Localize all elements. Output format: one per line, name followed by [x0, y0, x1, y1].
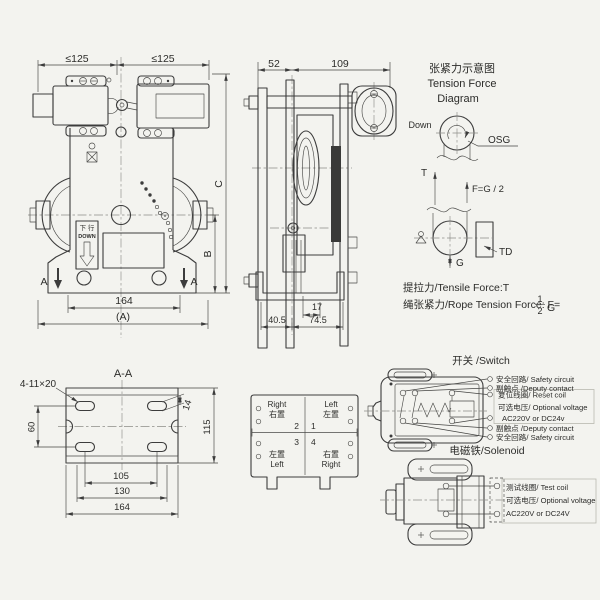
quadrant-tl-cn: 右置: [269, 409, 285, 419]
solenoid-coil-section: [457, 476, 484, 528]
slot-hole: [76, 443, 95, 452]
rope-break-wave: [427, 208, 471, 212]
dim-A-front: (A): [116, 311, 130, 323]
rope-break-wave: [437, 156, 478, 161]
tension-title-en1: Tension Force: [427, 78, 496, 90]
quadrant-tr-cn: 左置: [323, 409, 339, 419]
base-channel: [256, 272, 344, 300]
dim-74-5: 74.5: [309, 315, 327, 325]
dim-164-section: 164: [114, 502, 130, 513]
quadrant-tr-en: Left: [324, 400, 338, 409]
dim-109: 109: [331, 58, 349, 70]
linkage-arm: [108, 98, 118, 103]
base-hole: [152, 271, 166, 285]
quadrant-br-cn: 右置: [323, 449, 339, 459]
base-plate: [48, 250, 196, 293]
fraction-numerator: 1: [537, 294, 542, 304]
section-aa-title: A-A: [114, 368, 133, 380]
solenoid-body: [404, 478, 457, 524]
solenoid-title: 电磁铁/Solenoid: [449, 444, 524, 457]
front-view: ≤125 ≤125: [28, 53, 230, 338]
switch-label-voltage-value: AC220V or DC24v: [502, 414, 565, 423]
switch-label-deputy-bottom: 副触点 /Deputy contact: [496, 423, 575, 433]
solenoid-plunger: [386, 490, 396, 514]
switch-label-optional-voltage: 可选电压/ Optional voltage: [498, 402, 587, 412]
drawing-canvas: ≤125 ≤125: [0, 0, 600, 600]
section-arrow-icon: [54, 280, 62, 289]
down-arrow-icon: [80, 242, 94, 266]
rope-tension-note-G: G: [547, 302, 555, 314]
td-label: TD: [499, 247, 512, 258]
solenoid-label-voltage-value: AC220V or DC24V: [506, 509, 571, 518]
dim-105: 105: [113, 471, 129, 482]
right-plate: [340, 84, 348, 346]
fraction-denominator: 2: [537, 306, 542, 316]
tensile-force-note: 提拉力/Tensile Force:T: [403, 281, 510, 294]
switch-contacts: [400, 390, 418, 424]
force-G-label: G: [456, 258, 464, 269]
terminal-plate-outline: [251, 395, 358, 489]
solenoid-guide: [396, 484, 404, 520]
left-plate: [258, 88, 267, 348]
quadrant-num-2: 2: [294, 421, 299, 431]
section-arrow-icon: [180, 280, 188, 289]
tension-title-cn: 张紧力示意图: [429, 61, 495, 75]
dim-52: 52: [268, 58, 280, 70]
terminal-orientation-diagram: 2 1 3 4 Right 右置 Left 左置 左置 Left 右置 Righ…: [251, 395, 358, 489]
force-F-label: F=G / 2: [472, 184, 504, 195]
solenoid-flange-top: [408, 459, 472, 480]
section-aa-view: A-A 4-11×20 60 14 115 105 130 16: [20, 368, 218, 518]
dim-C: C: [213, 180, 225, 188]
center-plate: [286, 80, 294, 348]
dim-164-front: 164: [115, 295, 133, 307]
solenoid-diagram: 电磁铁/Solenoid 测试线圈/ Test coil 可选电压/ Optio…: [380, 444, 596, 545]
linkage-pivot: [117, 100, 128, 111]
solenoid-plunger: [33, 94, 53, 117]
dim-60: 60: [27, 422, 38, 433]
solenoid-flange-bottom: [408, 524, 472, 545]
switch-box-plate: [156, 94, 204, 118]
tension-weight-box: [476, 222, 493, 257]
quadrant-br-en: Right: [322, 460, 341, 469]
mount-tab: [66, 126, 106, 136]
quadrant-num-1: 1: [311, 421, 316, 431]
section-label-A-left: A: [40, 276, 47, 288]
switch-label-safety-top: 安全回路/ Safety circuit: [496, 374, 575, 384]
lever-plate: [297, 115, 333, 255]
slots-spec-label: 4-11×20: [20, 379, 57, 390]
down-label-cn: 下 行: [80, 223, 95, 232]
solenoid-label-optional-voltage: 可选电压/ Optional voltage: [506, 495, 595, 505]
side-view: 52 109 17 40.5 74.5: [244, 58, 396, 348]
pivot-anchor-icon: [416, 232, 426, 244]
switch-title: 开关 /Switch: [452, 354, 510, 367]
top-cross-bar: [267, 96, 352, 108]
switch-ear-top: [388, 369, 432, 381]
adjustment-dots: [140, 181, 172, 238]
switch-label-reset-coil: 复位线圈/ Reset coil: [498, 390, 566, 400]
switch-diagram: 开关 /Switch 安全回: [364, 354, 594, 451]
tension-force-diagram: 张紧力示意图 Tension Force Diagram Down OSG T …: [403, 61, 560, 316]
dim-115: 115: [202, 419, 213, 434]
reset-coil-box: [450, 401, 474, 417]
base-hole: [77, 271, 91, 285]
slot-hole: [148, 443, 167, 452]
slot-hole: [148, 402, 167, 411]
dim-130: 130: [114, 486, 130, 497]
dim-14: 14: [181, 398, 195, 411]
switch-spring-symbol: [418, 403, 451, 417]
down-rotation-label: Down: [408, 120, 431, 130]
quadrant-bl-cn: 左置: [269, 449, 285, 459]
brake-pad-block: [103, 233, 164, 268]
force-T-label: T: [421, 168, 427, 179]
brake-solenoid-body: [53, 86, 108, 125]
down-label-en: DOWN: [78, 234, 95, 240]
technical-drawing-sheet: ≤125 ≤125: [0, 0, 600, 600]
dim-17: 17: [312, 302, 322, 312]
section-marker-left: A: [40, 268, 62, 289]
tension-title-en2: Diagram: [437, 93, 479, 105]
section-marker-right: A: [180, 268, 198, 289]
dim-40-5: 40.5: [268, 315, 286, 325]
osg-label: OSG: [488, 135, 510, 146]
quadrant-num-4: 4: [311, 437, 316, 447]
switch-box-front: [137, 84, 209, 128]
slot-hole: [76, 402, 95, 411]
down-direction-plate: 下 行 DOWN: [76, 221, 98, 269]
switch-terminal-circles: [488, 377, 493, 440]
quadrant-num-3: 3: [294, 437, 299, 447]
solenoid-label-test-coil: 测试线圈/ Test coil: [506, 482, 568, 492]
compression-spring: [331, 146, 341, 242]
section-label-A-right: A: [190, 276, 197, 288]
switch-ear-bottom: [388, 439, 432, 451]
linkage-arm: [108, 107, 118, 114]
dim-B: B: [202, 250, 214, 257]
switch-label-safety-bottom: 安全回路/ Safety circuit: [496, 432, 575, 442]
dim-le125-left: ≤125: [65, 53, 88, 65]
quadrant-bl-en: Left: [270, 460, 284, 469]
quadrant-tl-en: Right: [268, 400, 287, 409]
dim-le125-right: ≤125: [151, 53, 174, 65]
